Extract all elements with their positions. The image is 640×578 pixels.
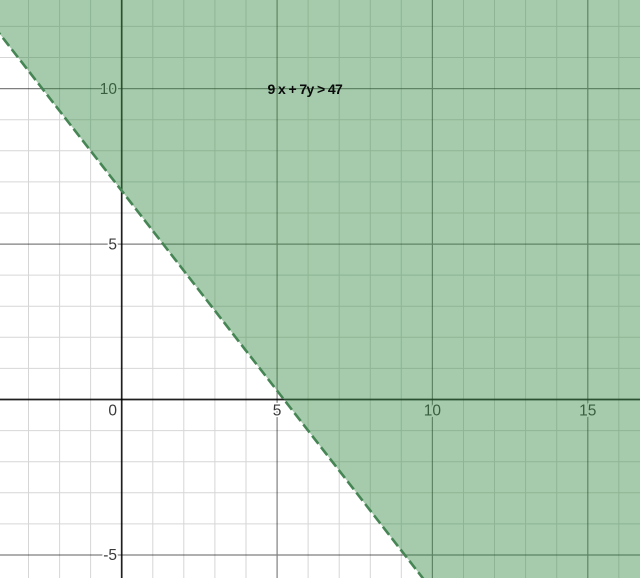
svg-text:9 x + 7y > 47: 9 x + 7y > 47: [268, 81, 344, 97]
svg-text:0: 0: [108, 403, 117, 420]
svg-text:-5: -5: [103, 547, 117, 564]
svg-text:5: 5: [273, 403, 282, 420]
svg-text:5: 5: [108, 236, 117, 253]
